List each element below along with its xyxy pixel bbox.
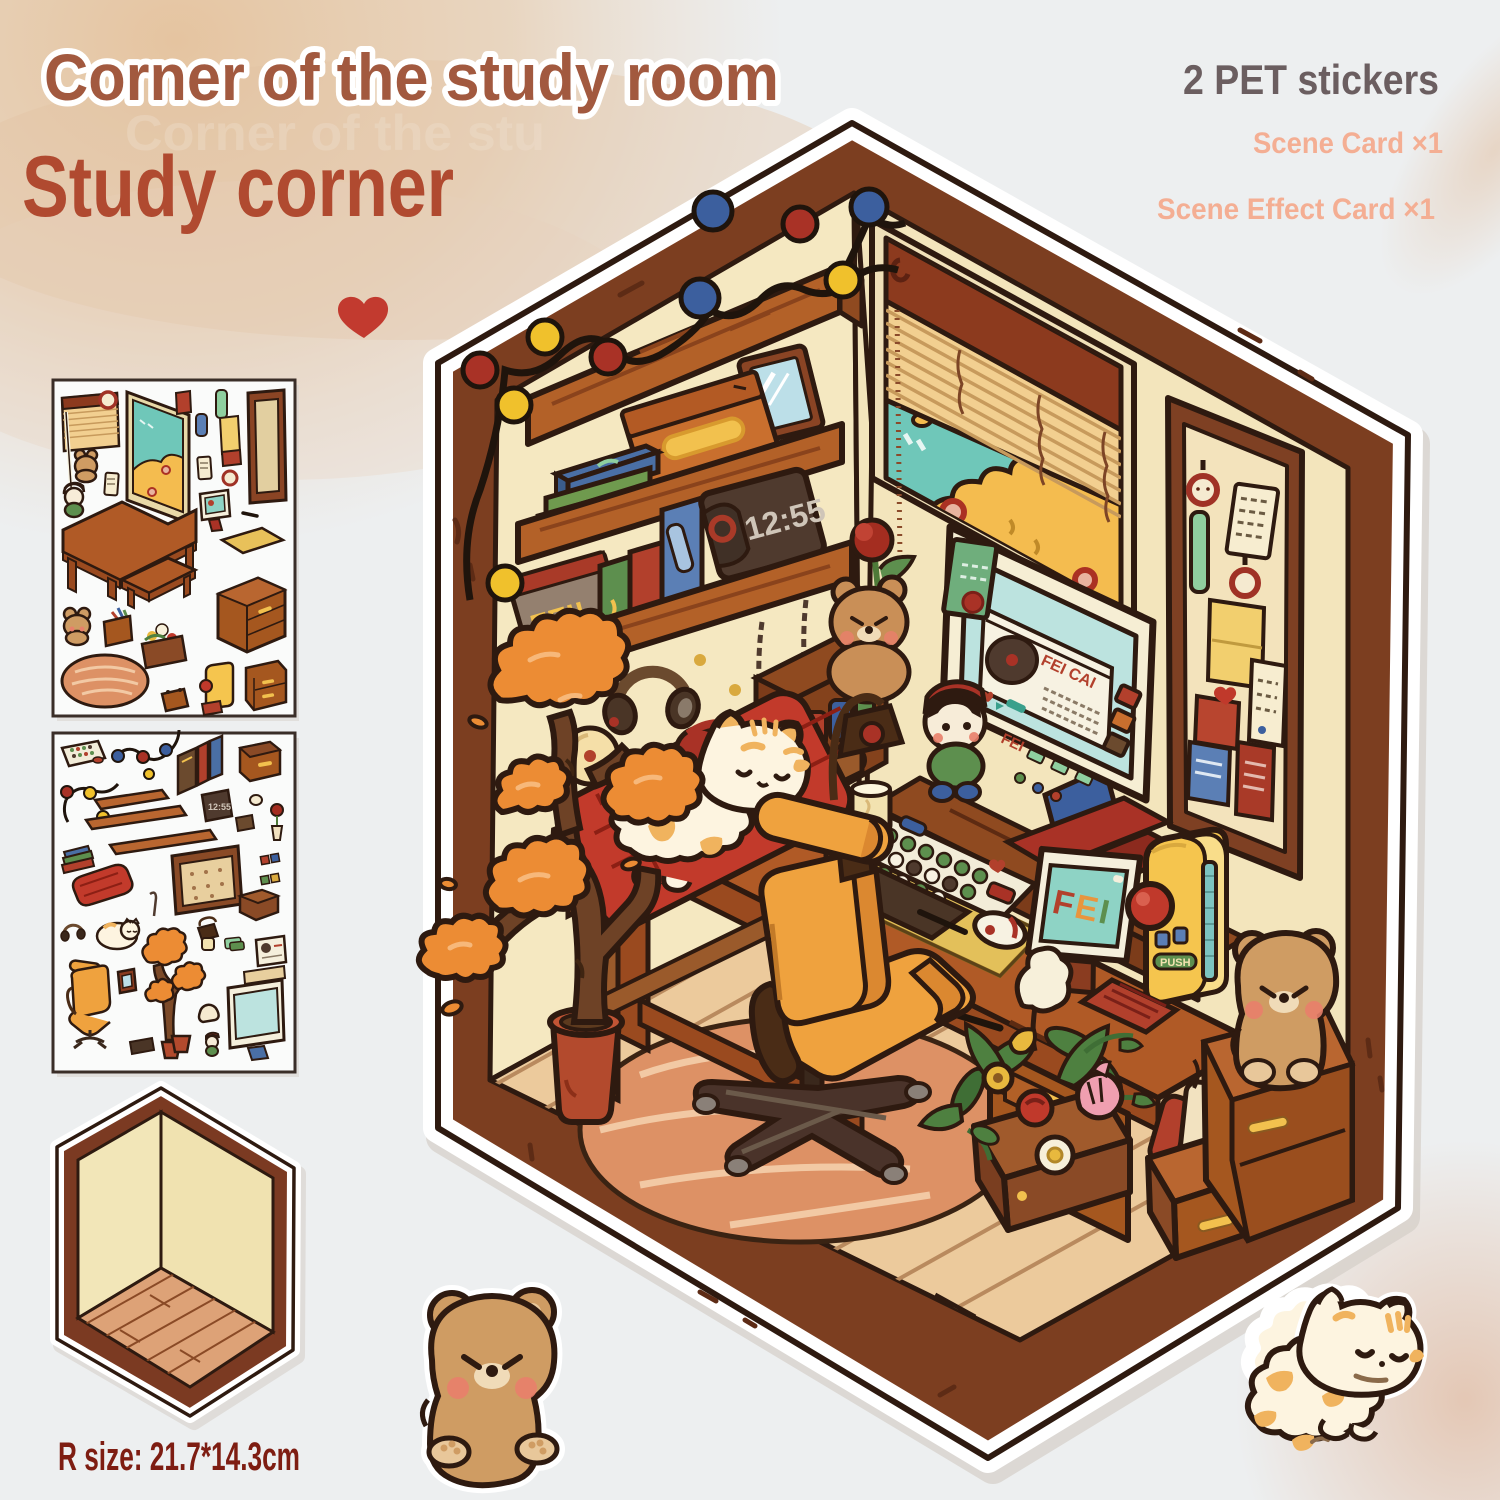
svg-text:Study corner: Study corner	[22, 139, 454, 235]
svg-text:Scene Card ×1: Scene Card ×1	[1253, 127, 1443, 160]
svg-text:12:55: 12:55	[208, 802, 231, 812]
svg-text:Scene Effect Card ×1: Scene Effect Card ×1	[1157, 193, 1435, 226]
svg-text:Corner of the study room: Corner of the study room	[44, 40, 779, 114]
svg-text:R size: 21.7*14.3cm: R size: 21.7*14.3cm	[58, 1435, 300, 1479]
svg-text:PUSH: PUSH	[1160, 957, 1191, 969]
svg-text:2 PET stickers: 2 PET stickers	[1183, 56, 1439, 103]
